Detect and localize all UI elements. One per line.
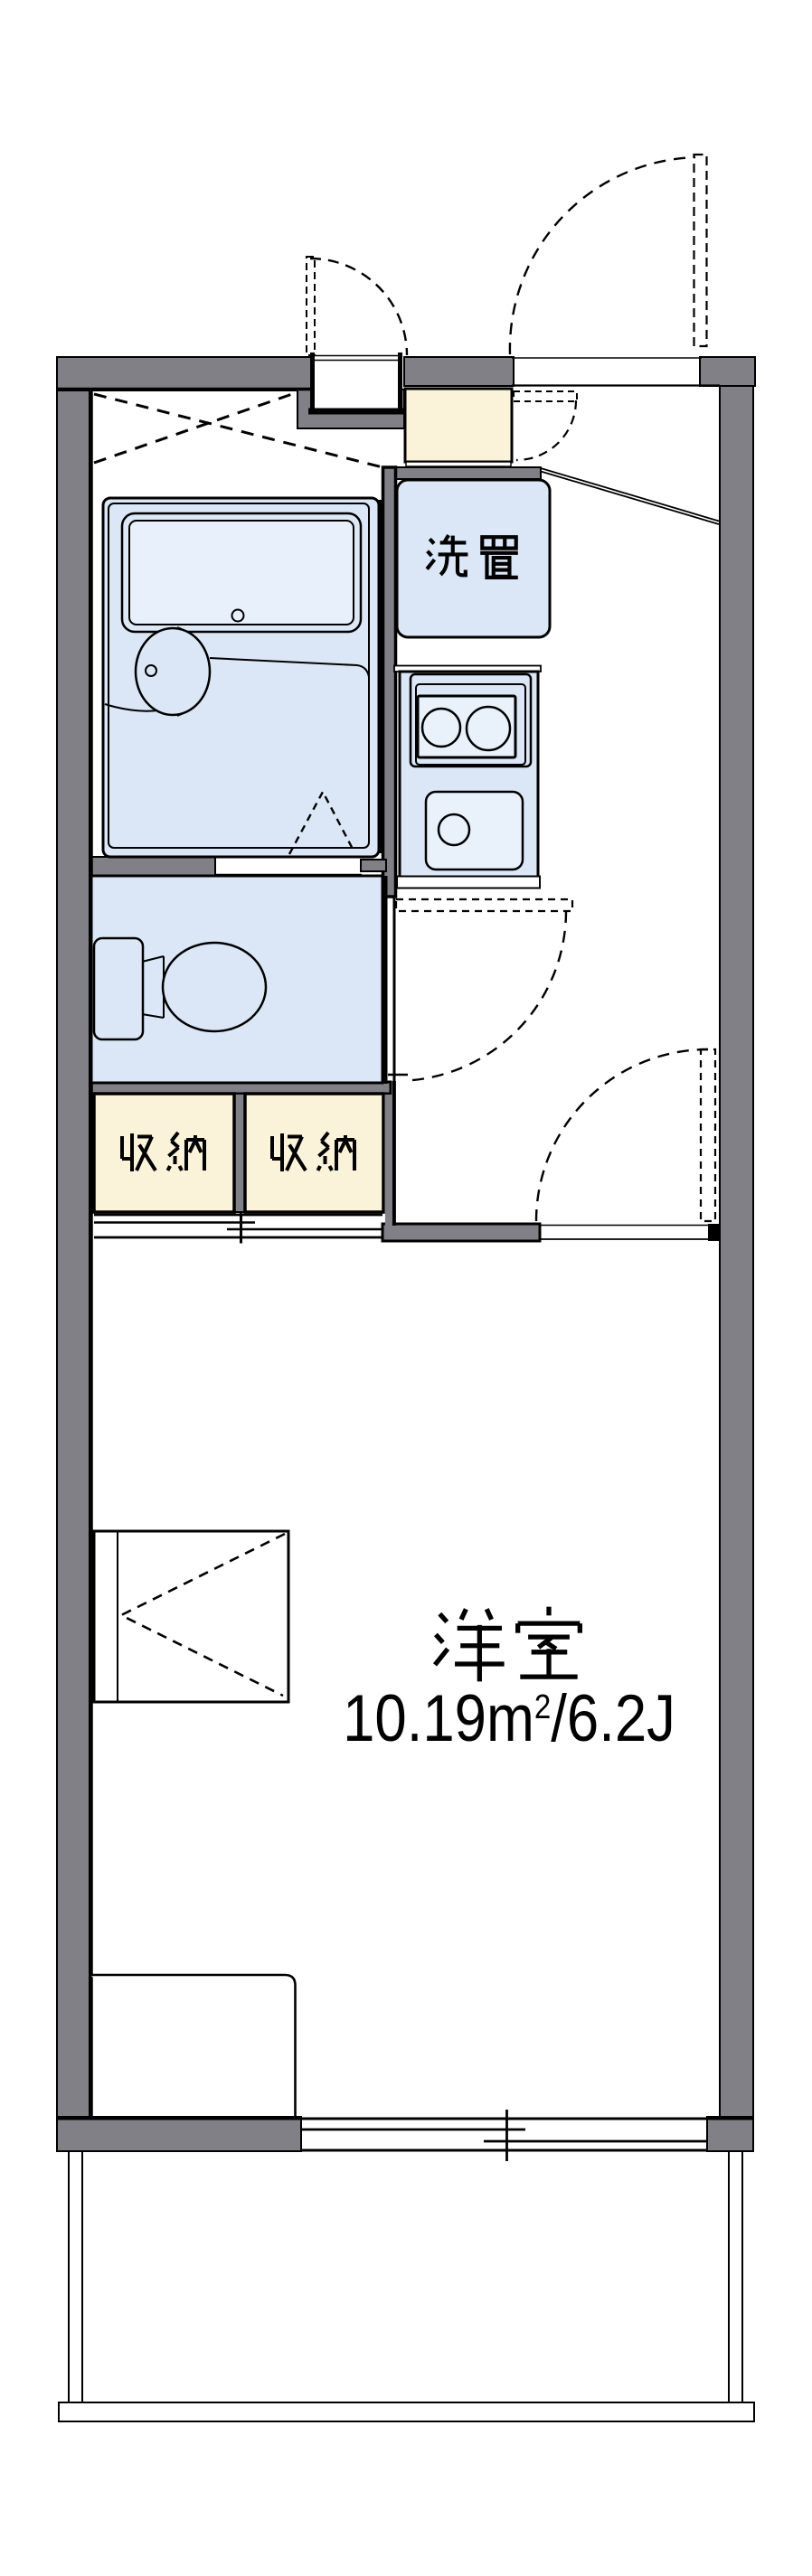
svg-text:10.19m2/6.2J: 10.19m2/6.2J	[343, 1682, 675, 1755]
